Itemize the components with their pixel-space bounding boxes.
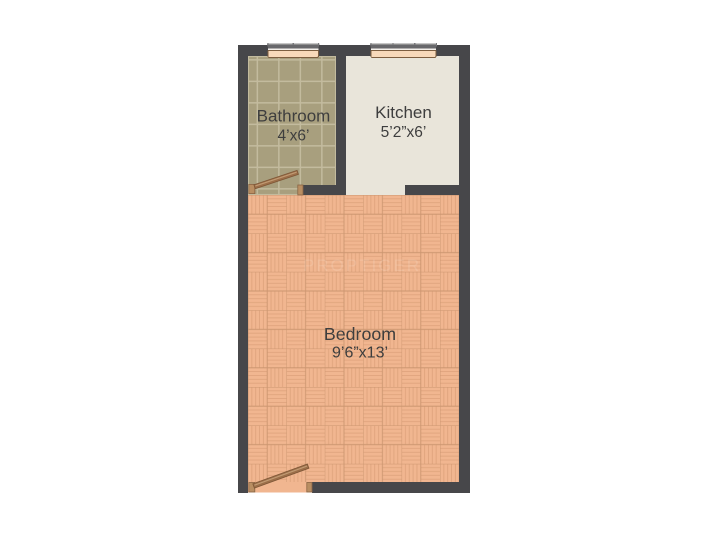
svg-text:Kitchen: Kitchen: [375, 103, 432, 122]
svg-text:Bathroom: Bathroom: [257, 107, 331, 126]
svg-text:5’2”x6’: 5’2”x6’: [381, 124, 427, 141]
svg-text:Bedroom: Bedroom: [324, 324, 396, 344]
svg-text:PROPTIGER: PROPTIGER: [303, 256, 421, 275]
svg-text:4’x6’: 4’x6’: [278, 128, 310, 145]
svg-text:9’6”x13’: 9’6”x13’: [332, 345, 388, 362]
